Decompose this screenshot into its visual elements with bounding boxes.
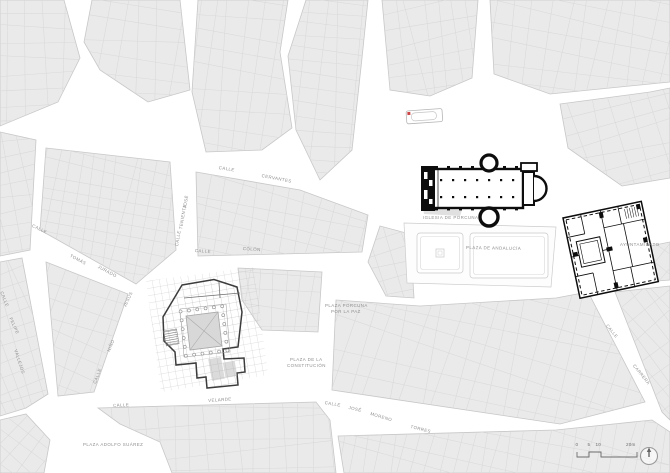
church-plan: [421, 155, 546, 226]
site-plan-screenshot: CALLECERVANTESCALLETENIENTEJOSÉCALLECOLÓ…: [0, 0, 670, 473]
church-chapel-ne: [521, 163, 537, 171]
plaza-platform-east: [470, 233, 548, 278]
plaza-andalucia-paving: [404, 223, 556, 287]
north-arrow-icon: [641, 448, 658, 465]
plaza-platform-west: [417, 233, 463, 273]
church-tower: [421, 166, 435, 211]
street-furniture-detail: [406, 108, 443, 123]
red-marker: [407, 112, 410, 115]
town-hall-plan: [563, 201, 658, 298]
church-chapel-north: [481, 155, 497, 171]
project-site-plan: [146, 267, 268, 392]
church-chapel-south: [480, 208, 498, 226]
site-plan-map: [0, 0, 670, 473]
church-apse: [534, 176, 546, 201]
town-hall-courtyard: [576, 237, 605, 267]
